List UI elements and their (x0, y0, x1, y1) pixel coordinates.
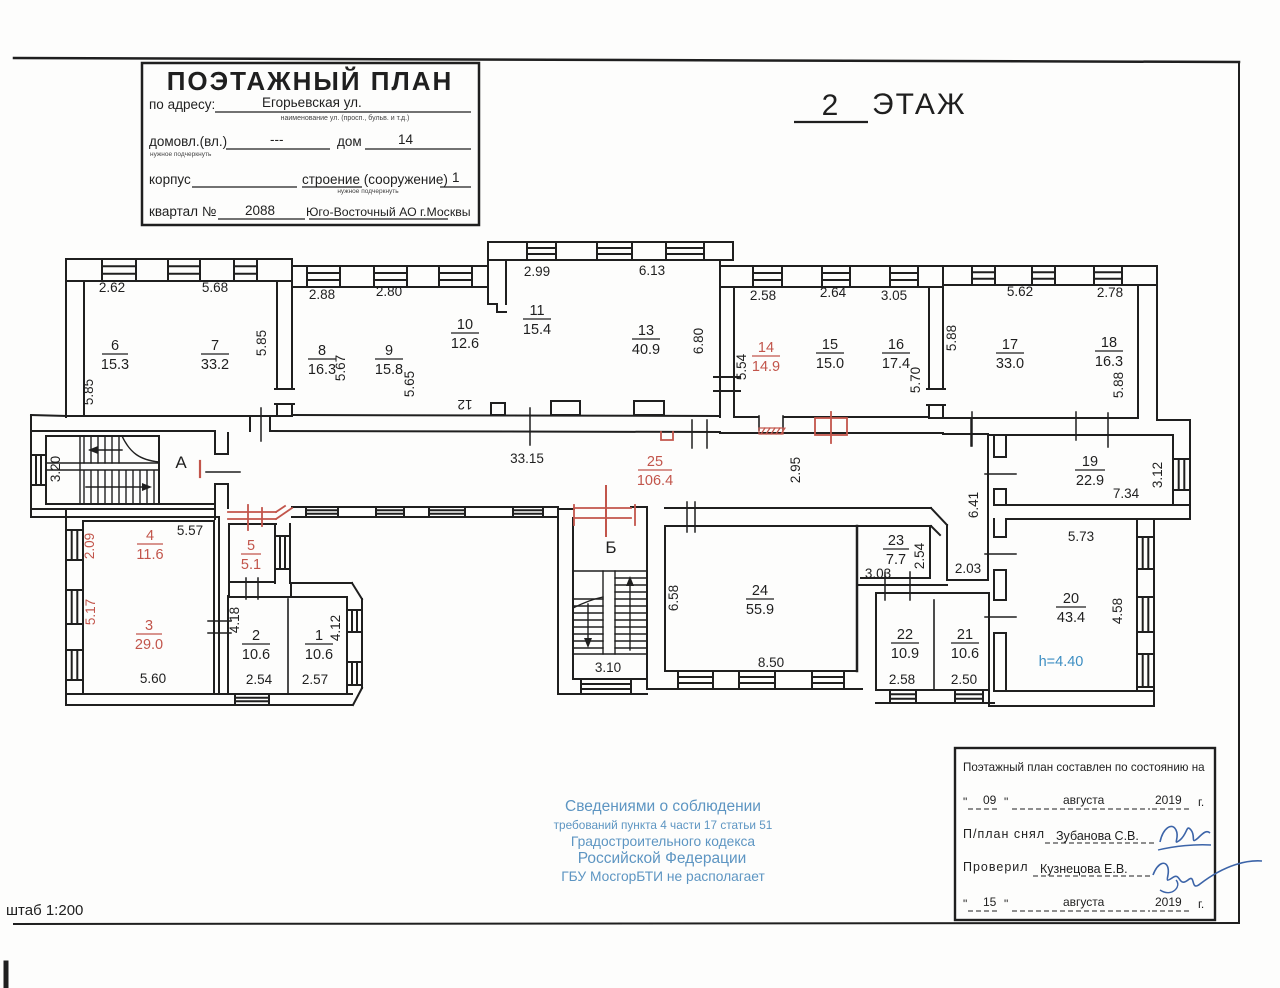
svg-text:2: 2 (822, 89, 839, 122)
svg-text:нужное подчеркнуть: нужное подчеркнуть (337, 188, 399, 195)
svg-text:22.9: 22.9 (1076, 473, 1104, 489)
svg-text:2.99: 2.99 (524, 264, 550, 279)
svg-text:5.70: 5.70 (908, 367, 923, 393)
svg-text:3.20: 3.20 (48, 456, 63, 482)
svg-text:1: 1 (452, 170, 460, 185)
svg-text:18: 18 (1101, 335, 1117, 351)
svg-text:09: 09 (983, 793, 997, 807)
svg-text:24: 24 (752, 583, 768, 599)
svg-text:5.88: 5.88 (1111, 372, 1126, 398)
svg-text:4.58: 4.58 (1110, 598, 1125, 624)
svg-text:15.4: 15.4 (523, 322, 551, 338)
svg-text:29.0: 29.0 (135, 637, 163, 653)
svg-text:2.78: 2.78 (1097, 285, 1123, 300)
svg-text:15.3: 15.3 (101, 357, 129, 373)
svg-text:Б: Б (605, 538, 616, 557)
svg-text:2.50: 2.50 (951, 672, 977, 687)
svg-text:6.41: 6.41 (966, 492, 981, 518)
svg-text:33.15: 33.15 (510, 451, 544, 466)
svg-text:6.80: 6.80 (691, 328, 706, 354)
svg-text:15: 15 (822, 337, 838, 353)
svg-text:2.95: 2.95 (788, 457, 803, 483)
svg-text:---: --- (270, 132, 284, 147)
svg-text:Проверил: Проверил (963, 860, 1029, 874)
svg-text:5.85: 5.85 (254, 330, 269, 356)
svg-text:": " (963, 897, 967, 911)
svg-text:13: 13 (638, 323, 654, 339)
svg-text:21: 21 (957, 627, 973, 643)
svg-text:3.05: 3.05 (881, 288, 907, 303)
svg-text:8.50: 8.50 (758, 655, 784, 670)
svg-text:16.3: 16.3 (308, 362, 336, 378)
svg-text:15: 15 (983, 895, 997, 909)
svg-text:2.58: 2.58 (889, 672, 915, 687)
svg-text:Поэтажный план составлен по со: Поэтажный план составлен по состоянию на (963, 761, 1205, 774)
svg-text:17.4: 17.4 (882, 356, 910, 372)
svg-text:5.57: 5.57 (177, 523, 203, 538)
svg-text:5.54: 5.54 (734, 353, 749, 380)
svg-text:г.: г. (1198, 897, 1204, 911)
svg-text:33.0: 33.0 (996, 356, 1024, 372)
svg-text:10.9: 10.9 (891, 646, 919, 662)
svg-text:4.12: 4.12 (328, 615, 343, 641)
svg-text:6.13: 6.13 (639, 263, 665, 278)
svg-text:": " (1004, 795, 1008, 809)
svg-text:14.9: 14.9 (752, 359, 780, 375)
svg-text:5.60: 5.60 (140, 671, 166, 686)
svg-text:15.0: 15.0 (816, 356, 844, 372)
svg-text:2.57: 2.57 (302, 672, 328, 687)
svg-text:ЭТАЖ: ЭТАЖ (872, 88, 967, 121)
svg-text:2019: 2019 (1155, 793, 1182, 807)
svg-text:5.88: 5.88 (944, 325, 959, 351)
svg-text:дом: дом (337, 134, 362, 149)
svg-text:12.6: 12.6 (451, 336, 479, 352)
svg-text:строение (сооружение): строение (сооружение) (302, 172, 448, 187)
svg-text:5.62: 5.62 (1007, 284, 1033, 299)
svg-text:h=4.40: h=4.40 (1039, 654, 1084, 670)
svg-text:5.68: 5.68 (202, 280, 228, 295)
svg-text:2088: 2088 (245, 203, 275, 218)
svg-text:5: 5 (247, 538, 255, 554)
svg-text:8: 8 (318, 343, 326, 359)
svg-text:5.67: 5.67 (333, 355, 348, 381)
svg-text:Кузнецова Е.В.: Кузнецова Е.В. (1040, 862, 1128, 876)
svg-text:11: 11 (529, 303, 544, 319)
svg-text:16: 16 (888, 337, 904, 353)
svg-text:": " (963, 795, 967, 809)
svg-text:33.2: 33.2 (201, 357, 229, 373)
svg-text:7.34: 7.34 (1113, 486, 1140, 501)
svg-text:наименование ул. (просп., буль: наименование ул. (просп., бульв. и т.д.) (281, 114, 410, 122)
svg-text:4: 4 (146, 528, 154, 544)
svg-text:3.10: 3.10 (595, 660, 621, 675)
svg-text:штаб 1:200: штаб 1:200 (6, 902, 83, 919)
svg-text:55.9: 55.9 (746, 602, 774, 618)
svg-text:требований пункта 4 части 17 с: требований пункта 4 части 17 статьи 51 (554, 818, 773, 832)
svg-text:": " (1004, 897, 1008, 911)
svg-text:Зубанова С.В.: Зубанова С.В. (1056, 829, 1139, 843)
svg-text:6: 6 (111, 338, 119, 354)
svg-text:2.54: 2.54 (246, 672, 273, 687)
svg-text:5.17: 5.17 (83, 599, 98, 625)
svg-text:3: 3 (145, 618, 153, 634)
svg-text:г.: г. (1198, 795, 1204, 809)
svg-text:2.80: 2.80 (376, 284, 402, 299)
svg-text:Градостроительного кодекса: Градостроительного кодекса (571, 834, 756, 849)
svg-text:2.62: 2.62 (99, 280, 125, 295)
svg-text:по адресу:: по адресу: (149, 97, 215, 112)
svg-text:10.6: 10.6 (951, 646, 979, 662)
svg-text:корпус: корпус (149, 172, 191, 187)
svg-text:П/план снял: П/план снял (963, 827, 1045, 841)
svg-text:нужное подчеркнуть: нужное подчеркнуть (150, 151, 212, 158)
svg-text:2019: 2019 (1155, 895, 1182, 909)
svg-text:7: 7 (211, 338, 219, 354)
svg-text:11.6: 11.6 (136, 547, 163, 563)
svg-text:Юго-Восточный АО г.Москвы: Юго-Восточный АО г.Москвы (306, 205, 471, 219)
svg-text:19: 19 (1082, 454, 1098, 470)
svg-text:20: 20 (1063, 591, 1079, 607)
svg-text:4.18: 4.18 (227, 607, 242, 633)
svg-text:9: 9 (385, 343, 393, 359)
svg-text:А: А (175, 453, 187, 472)
svg-text:2.64: 2.64 (820, 285, 847, 300)
svg-text:августа: августа (1063, 895, 1105, 909)
svg-text:25: 25 (647, 454, 663, 470)
svg-text:5.1: 5.1 (241, 557, 261, 573)
svg-text:2.58: 2.58 (750, 288, 776, 303)
svg-text:Сведениями о соблюдении: Сведениями о соблюдении (565, 798, 761, 815)
svg-text:августа: августа (1063, 793, 1105, 807)
svg-text:22: 22 (897, 627, 913, 643)
svg-text:10: 10 (457, 317, 473, 333)
svg-text:5.85: 5.85 (81, 379, 96, 405)
svg-text:1: 1 (315, 628, 323, 644)
svg-text:2.54: 2.54 (912, 542, 927, 569)
svg-text:Российской Федерации: Российской Федерации (578, 850, 747, 867)
svg-text:12: 12 (457, 397, 472, 412)
svg-text:106.4: 106.4 (637, 473, 673, 489)
svg-text:квартал №: квартал № (149, 204, 216, 219)
svg-text:2.03: 2.03 (955, 561, 981, 576)
svg-text:2.09: 2.09 (82, 533, 97, 559)
svg-text:16.3: 16.3 (1095, 354, 1123, 370)
svg-text:2.88: 2.88 (309, 287, 335, 302)
svg-text:6.58: 6.58 (666, 585, 681, 611)
svg-text:23: 23 (888, 533, 904, 549)
svg-text:15.8: 15.8 (375, 362, 403, 378)
svg-text:3.03: 3.03 (865, 566, 891, 581)
svg-text:ГБУ МосгорБТИ не располагает: ГБУ МосгорБТИ не располагает (561, 869, 765, 884)
svg-text:10.6: 10.6 (242, 647, 270, 663)
svg-text:5.65: 5.65 (402, 371, 417, 397)
svg-text:10.6: 10.6 (305, 647, 333, 663)
svg-text:43.4: 43.4 (1057, 610, 1085, 626)
svg-text:14: 14 (758, 340, 774, 356)
svg-text:14: 14 (398, 132, 414, 147)
svg-text:3.12: 3.12 (1150, 462, 1165, 488)
svg-text:5.73: 5.73 (1068, 529, 1094, 544)
svg-text:Егорьевская ул.: Егорьевская ул. (262, 95, 362, 110)
svg-text:ПОЭТАЖНЫЙ ПЛАН: ПОЭТАЖНЫЙ ПЛАН (167, 66, 454, 96)
svg-text:17: 17 (1002, 337, 1018, 353)
svg-text:домовл.(вл.): домовл.(вл.) (149, 134, 227, 149)
svg-text:40.9: 40.9 (632, 342, 660, 358)
svg-text:2: 2 (252, 628, 260, 644)
